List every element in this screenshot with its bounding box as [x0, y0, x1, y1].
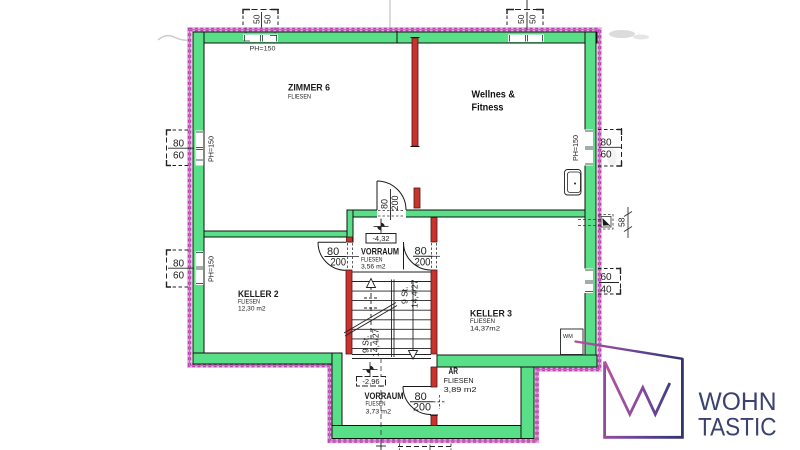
svg-text:3,56 m2: 3,56 m2 [361, 264, 386, 271]
svg-text:60: 60 [173, 271, 185, 282]
svg-text:Wellnes &: Wellnes & [472, 89, 516, 101]
svg-text:PH=150: PH=150 [573, 135, 580, 161]
svg-text:80: 80 [601, 138, 613, 149]
svg-text:80: 80 [173, 259, 185, 270]
svg-text:200: 200 [331, 257, 347, 269]
svg-text:50: 50 [263, 14, 273, 24]
svg-text:FLIESEN: FLIESEN [444, 378, 474, 385]
svg-text:KELLER 3: KELLER 3 [470, 309, 512, 320]
svg-text:50: 50 [516, 14, 526, 24]
svg-text:-4,32: -4,32 [372, 234, 389, 243]
svg-text:14,37m2: 14,37m2 [470, 326, 500, 333]
svg-text:ZIMMER 6: ZIMMER 6 [288, 83, 330, 93]
svg-text:9 St.: 9 St. [361, 336, 371, 353]
svg-text:VORRAUM: VORRAUM [361, 247, 399, 257]
svg-text:60: 60 [601, 150, 613, 161]
svg-text:9 St.: 9 St. [400, 287, 410, 304]
svg-text:PH=150: PH=150 [209, 136, 216, 162]
svg-text:58: 58 [617, 217, 627, 227]
svg-text:14,4/27: 14,4/27 [410, 279, 420, 308]
svg-text:KELLER 2: KELLER 2 [238, 289, 279, 300]
svg-text:50: 50 [252, 14, 262, 24]
svg-text:VORRAUM: VORRAUM [365, 391, 404, 401]
svg-text:AR: AR [449, 366, 459, 376]
svg-text:50: 50 [528, 14, 538, 24]
svg-text:Fitness: Fitness [472, 102, 504, 114]
svg-text:FLIESEN: FLIESEN [288, 95, 311, 101]
svg-text:80: 80 [173, 139, 185, 150]
svg-text:60: 60 [173, 151, 185, 162]
svg-text:TASTIC: TASTIC [698, 413, 777, 441]
svg-text:-2,96: -2,96 [362, 377, 379, 386]
svg-text:3,89 m2: 3,89 m2 [444, 387, 477, 394]
svg-text:12,30 m2: 12,30 m2 [238, 306, 266, 313]
svg-text:WM: WM [563, 334, 573, 340]
svg-text:200: 200 [415, 257, 431, 269]
svg-text:WOHN: WOHN [699, 388, 777, 416]
svg-text:PH=150: PH=150 [209, 256, 216, 282]
svg-text:80: 80 [380, 199, 390, 209]
svg-text:FLIESEN: FLIESEN [470, 319, 495, 325]
svg-text:FLIESEN: FLIESEN [366, 402, 386, 408]
svg-text:3,73 m2: 3,73 m2 [366, 409, 392, 416]
svg-text:200: 200 [390, 195, 400, 210]
svg-text:14,4/27: 14,4/27 [371, 328, 381, 357]
svg-text:40: 40 [601, 285, 613, 296]
svg-text:PH=150: PH=150 [250, 46, 276, 53]
svg-text:60: 60 [601, 272, 613, 283]
svg-text:200: 200 [413, 402, 431, 414]
